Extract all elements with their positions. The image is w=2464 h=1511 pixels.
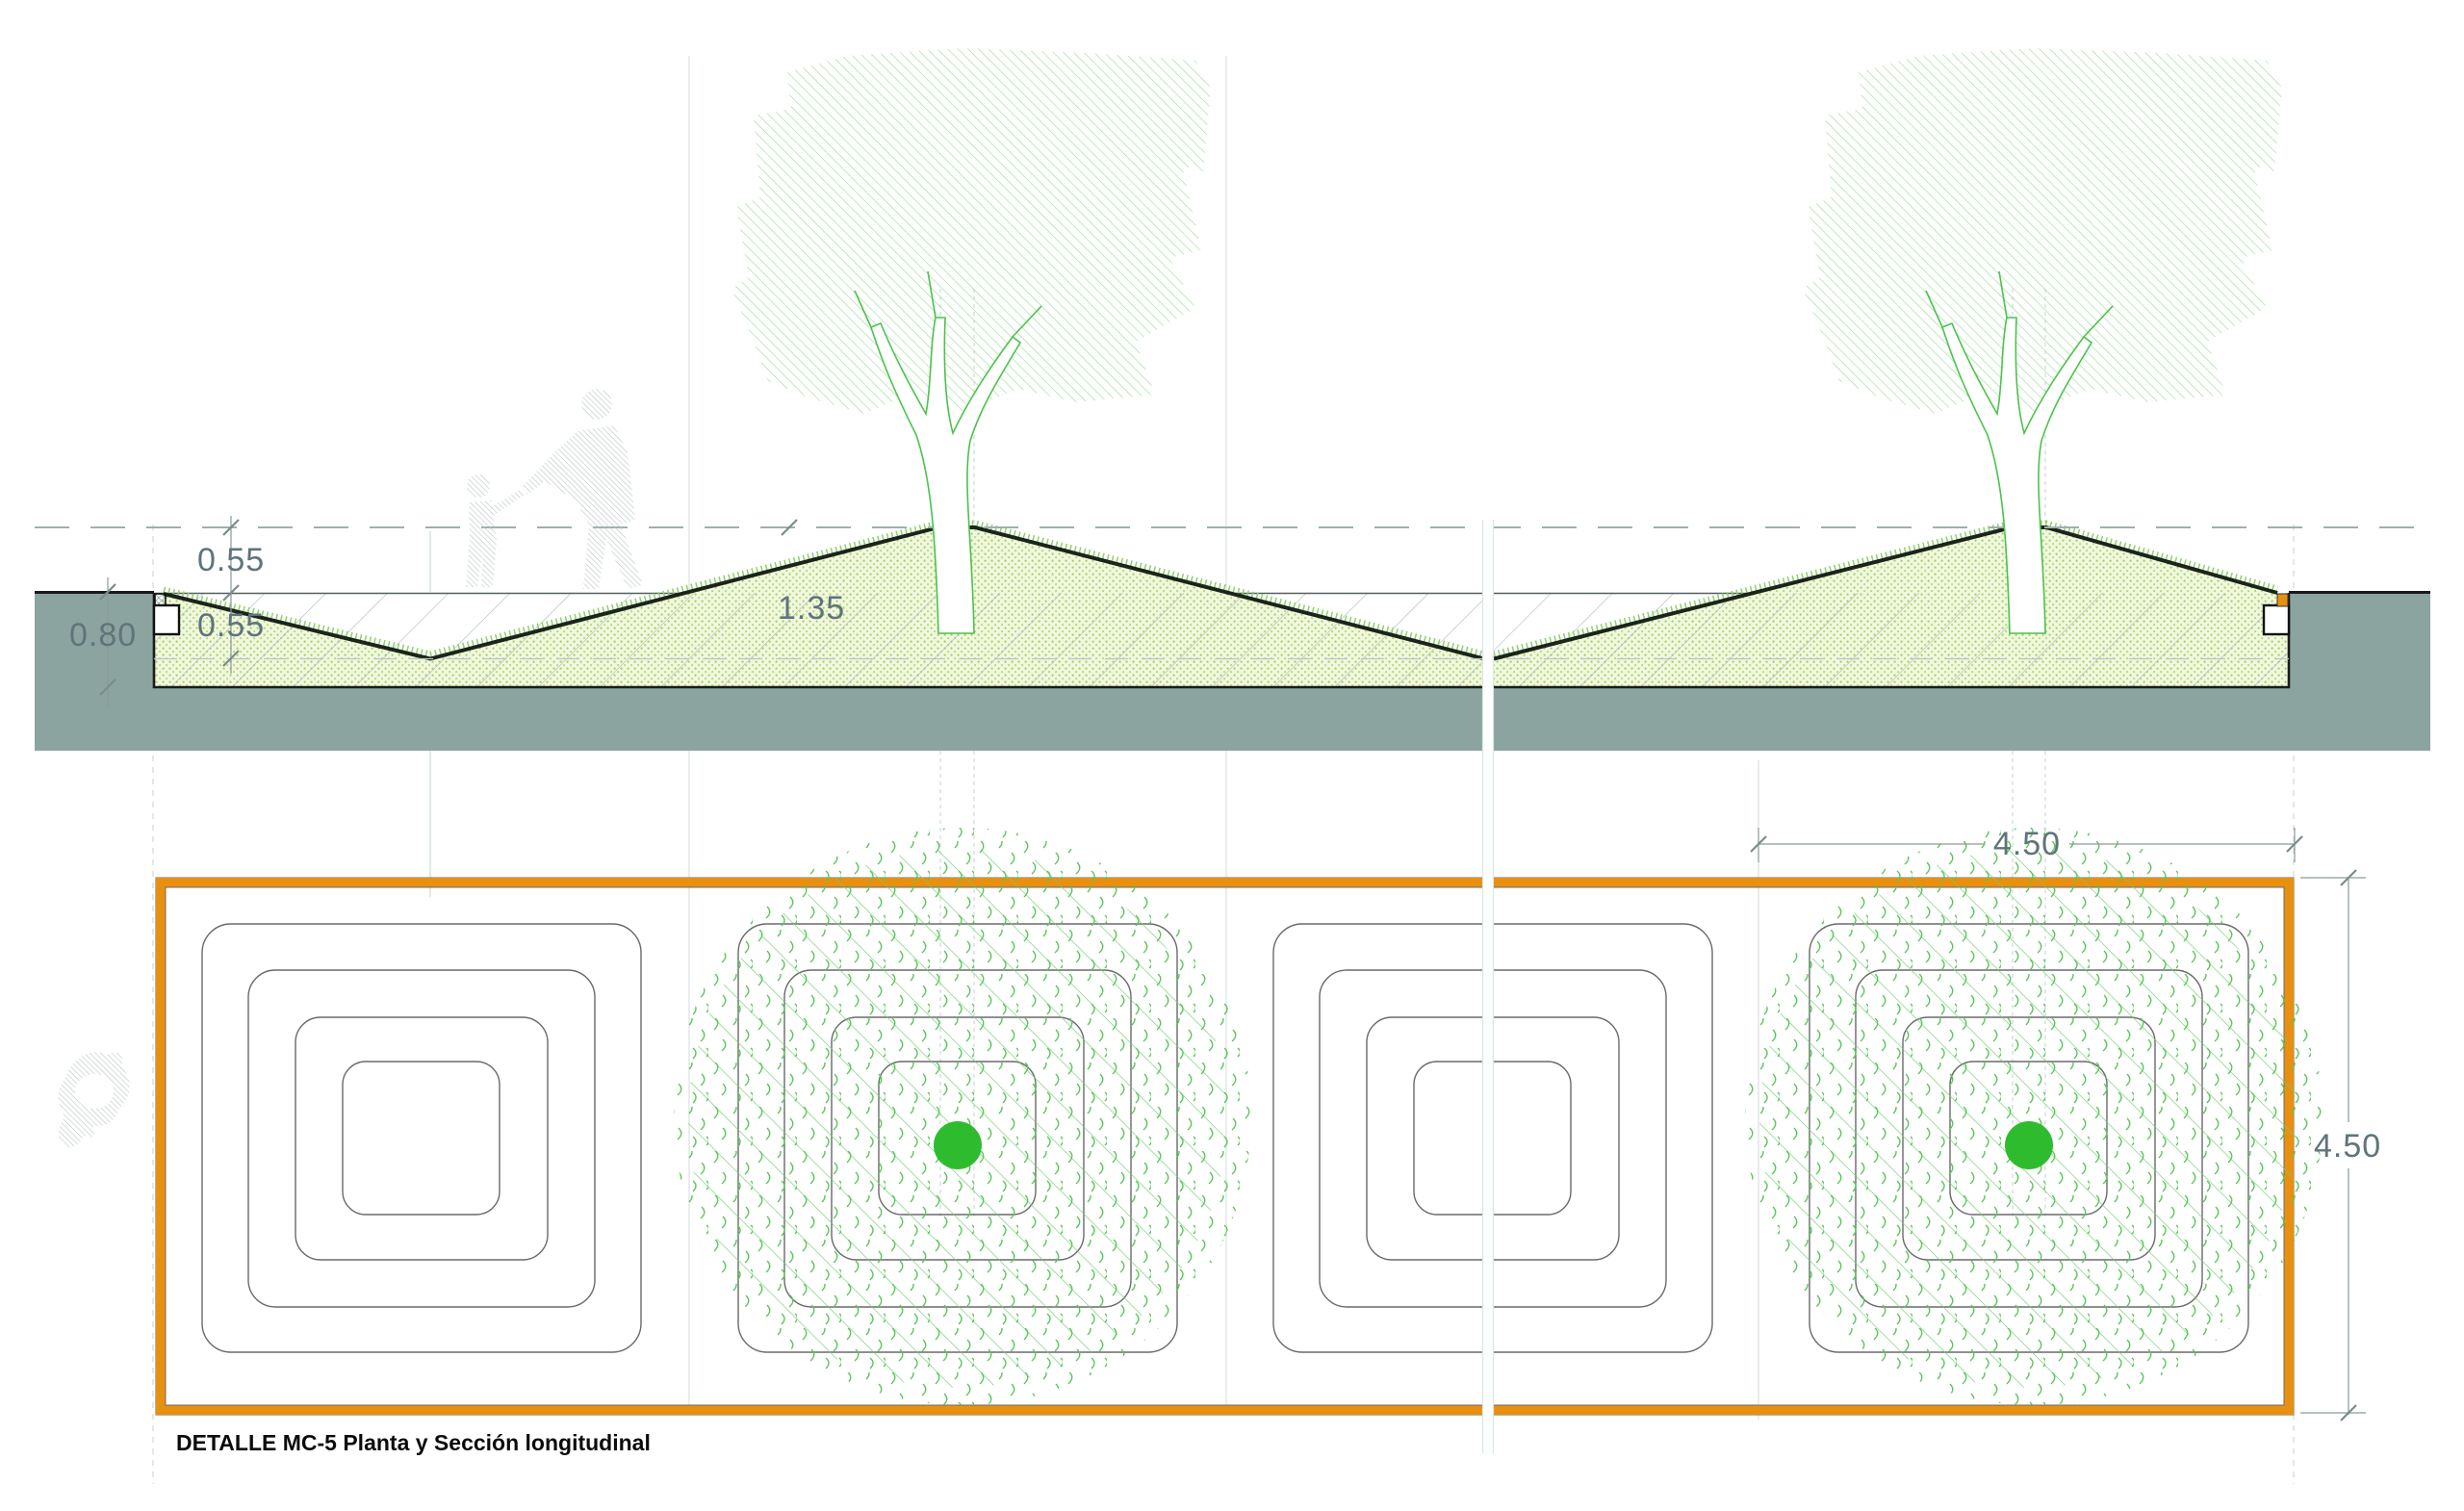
person-adult-icon [522, 389, 643, 589]
dim-total-height: 1.35 [778, 590, 845, 627]
drawing-title: DETALLE MC-5 Planta y Sección longitudin… [176, 1430, 651, 1456]
dim-bed-depth: 0.55 [197, 607, 265, 645]
trench-hatch [154, 593, 2289, 687]
person-plan-icon [59, 1052, 130, 1147]
sheet-divider-line [1482, 520, 1494, 1453]
plan-view [59, 828, 2367, 1421]
person-child-icon [466, 474, 526, 587]
dim-canopy-diameter: 4.50 [1993, 826, 2061, 863]
dim-module-width: 4.50 [2314, 1128, 2381, 1165]
drawing-sheet: 0.55 0.55 0.80 1.35 4.50 4.50 DETALLE MC… [0, 0, 2464, 1511]
planter-square-1 [202, 924, 641, 1352]
dim-mound-height: 0.55 [197, 542, 265, 579]
dim-edge-depth: 0.80 [69, 617, 137, 654]
drawing-canvas [0, 0, 2464, 1511]
